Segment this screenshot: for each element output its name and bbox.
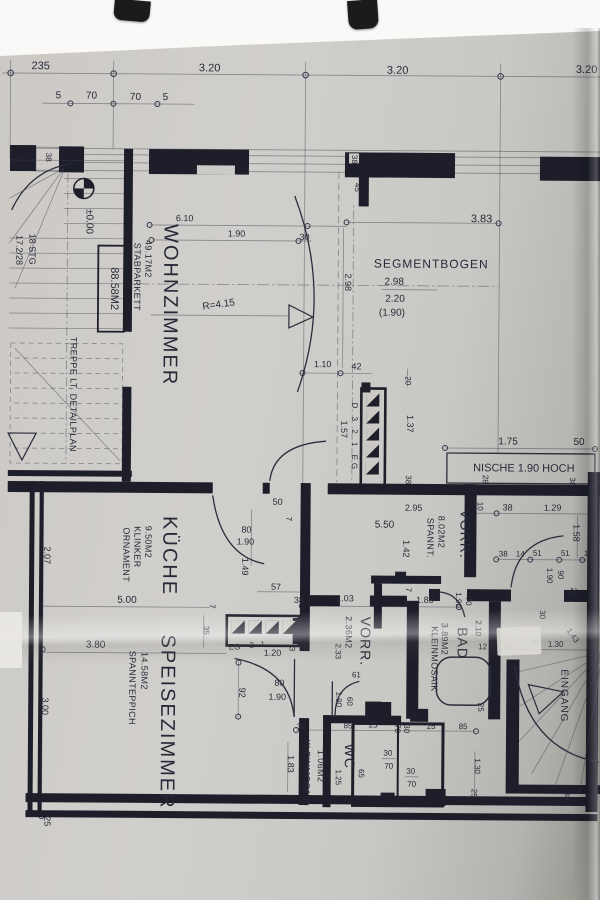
dim-label: 7 (404, 588, 413, 593)
dim-label: 30 (402, 724, 411, 734)
dim-label: 1.37 (405, 415, 415, 433)
dim-label: 1.90 (334, 691, 343, 707)
dim-label: 2.07 (42, 546, 52, 564)
dim-label: 80 (274, 678, 284, 688)
room-name-vorraum: VORR. (457, 509, 473, 558)
dim-label: 2.98 (343, 274, 353, 292)
step-label: 2 (249, 641, 254, 650)
dim-label: 3.80 (86, 640, 106, 651)
dim-label: 70 (86, 90, 98, 101)
dim-label: 28 (481, 475, 490, 485)
dim-label: 38 (44, 153, 53, 163)
room-area-speisezimmer: 14.58M2 (139, 652, 149, 690)
tape-patch-right (497, 626, 542, 656)
dim-label: 1.29 (544, 503, 562, 513)
segmentbogen-title: SEGMENTBOGEN (374, 257, 489, 272)
stair-steps-note: 18 STG (27, 234, 37, 265)
dim-label: 35 (202, 626, 211, 636)
dim-label: 70 (464, 597, 473, 607)
room-name-vorraum2: VORR. (357, 617, 373, 666)
dim-label: 50 (573, 437, 585, 448)
dim-label: 70 (384, 762, 394, 771)
dim-label: 1.90 (237, 537, 255, 547)
dim-label: 2.33 (334, 643, 343, 659)
dim-label: 80 (241, 525, 251, 535)
dim-label: 3.83 (471, 213, 493, 225)
dim-label: 25 (369, 720, 379, 729)
step-symbols (366, 393, 380, 474)
floorplan-photo: 235 3.20 3.20 3.20 5 70 70 5 38 38 45 18… (0, 0, 600, 900)
room-floor-bad: KLEINMOSAIK (429, 626, 439, 691)
room-name-bad: BAD (455, 627, 471, 659)
dim-label: 70 (130, 92, 142, 103)
arch-steps (361, 382, 386, 485)
dim-label: 70 (407, 780, 417, 789)
dim-label: 1.85 (416, 595, 434, 605)
dim-label: 38 (294, 595, 304, 605)
dim-label: 25 (569, 587, 578, 597)
dim-label: 5.00 (117, 595, 137, 606)
dim-label: 7 (208, 604, 217, 609)
room-name-eingang: EINGANG (558, 669, 569, 722)
room-area-wohnzimmer: 49.17M2 (143, 240, 153, 278)
floorplan-drawing: 235 3.20 3.20 3.20 5 70 70 5 38 38 45 18… (0, 0, 600, 900)
segmentbogen-value: (1.90) (379, 308, 405, 319)
dim-label: 30 (383, 749, 393, 758)
room-area-wc: 1.06M2 (316, 750, 326, 782)
room-name-wc: WC (342, 744, 358, 769)
room-floor-wc: KLEINMOSAIK (302, 739, 312, 804)
dim-label: 1.30 (473, 758, 482, 774)
dim-label: 45 (353, 183, 362, 193)
tape-patch-left (0, 612, 22, 668)
room-name-kueche: KÜCHE (158, 516, 181, 596)
room-name-wohnzimmer: WOHNZIMMER (158, 224, 181, 386)
dim-label: 5.50 (375, 520, 395, 531)
dim-label: 3.20 (576, 64, 598, 76)
step-numbers: D 3 2 1 EG (350, 403, 359, 473)
binder-clip-icon (347, 0, 379, 30)
dim-label: 235 (31, 60, 49, 72)
room-floor-kueche: KLINKER (132, 526, 142, 567)
dim-label: 7 (284, 517, 293, 522)
dim-label: 30 (538, 610, 547, 620)
dim-label: 1.30 (548, 640, 564, 649)
dim-label: 2.95 (405, 503, 423, 513)
dim-label: 1.57 (339, 421, 349, 439)
dim-label: 1.75 (498, 436, 518, 447)
dim-label: 57 (271, 582, 281, 592)
dim-label: 51 (561, 549, 571, 558)
dim-label: 42 (352, 361, 362, 371)
step-label: EG (229, 643, 241, 652)
dim-label: 30 (299, 232, 309, 242)
dim-label: 65 (357, 769, 366, 779)
dim-label: 1.49 (240, 558, 250, 576)
dim-label: 92 (237, 688, 247, 698)
dim-label: 70 (393, 724, 402, 734)
dim-label: 90 (556, 570, 565, 580)
dim-label: 1.43 (565, 627, 582, 645)
walls (5, 145, 600, 821)
dim-label: 3.20 (387, 65, 409, 77)
dim-label: 61 (352, 670, 362, 679)
dim-label: 85 (459, 722, 469, 731)
dim-label: 25 (42, 816, 52, 826)
dim-label: 25 (470, 789, 479, 799)
grid-lines (0, 60, 600, 487)
radius-label: R=4.15 (202, 297, 236, 312)
dim-label: 38 (297, 722, 307, 731)
room-area-vorraum2: 2.36M2 (344, 616, 354, 648)
dim-label: 1.83 (286, 755, 296, 773)
level-marker-icon (74, 178, 94, 198)
room-name-speisezimmer: SPEISEZIMMER (155, 634, 178, 809)
dim-label: 38 (404, 475, 413, 485)
bathtub (436, 657, 490, 705)
dim-label: 3.00 (40, 697, 50, 715)
dim-label: 38 (568, 477, 577, 487)
dim-label: 5 (56, 90, 62, 101)
dim-label: 25 (427, 722, 437, 731)
dim-label: 38 (563, 791, 572, 801)
dim-label: 1.20 (264, 648, 282, 658)
dim-label: 1.90 (454, 592, 463, 608)
segmentbogen-value: 2.98 (384, 277, 404, 288)
dim-label: 1.90 (228, 228, 246, 238)
dim-label: 13 (584, 549, 594, 558)
dim-label: 3.20 (199, 62, 221, 74)
room-floor-speisezimmer: SPANNTEPPICH (127, 651, 138, 725)
room-floor-vorraum: SPANNT. (425, 518, 435, 558)
room-area-vorraum: 8.02M2 (436, 516, 446, 548)
binder-clip-icon (113, 0, 151, 23)
dim-label: 1.03 (336, 593, 354, 603)
dim-label: 1.25 (334, 769, 343, 785)
room-floor-kueche: ORNAMENT (121, 527, 131, 582)
dim-label: 51 (533, 549, 543, 558)
room-area-bad: 3.89M2 (440, 623, 450, 655)
dim-label: 1.58 (571, 524, 581, 542)
dim-label: 1.90 (268, 692, 286, 702)
segmentbogen-value: 2.20 (385, 294, 405, 305)
dim-label: 14 (516, 550, 526, 559)
room-floor-wohnzimmer: STABPARKETT (132, 243, 142, 311)
dim-label: 30 (406, 767, 416, 776)
dim-label: 38 (503, 502, 513, 512)
stair-detail-note: TREPPE LT. DETAILPLAN (68, 337, 79, 452)
total-area-label: 88.58M2 (108, 267, 120, 310)
nische-label: NISCHE 1.90 HOCH (473, 462, 575, 475)
dim-label: 60 (345, 697, 354, 707)
dim-label: 25 (476, 703, 485, 713)
dim-label: 38 (350, 155, 359, 165)
dim-label: 38 (499, 549, 509, 558)
dim-label: 1.10 (314, 359, 332, 369)
dim-label: 20 (403, 376, 412, 386)
stair-steps-note: 17.2/28 (14, 235, 24, 265)
dim-label: 7 (386, 597, 391, 606)
dim-label: 50 (273, 497, 283, 507)
room-area-kueche: 9.50M2 (143, 526, 153, 558)
dim-label: 6.10 (176, 213, 194, 223)
dim-label: 85 (344, 721, 354, 730)
dim-label: 1.90 (545, 568, 554, 584)
dim-label: 1.42 (401, 540, 411, 558)
dim-label: 12 (478, 642, 488, 651)
step-label: 3 (288, 647, 297, 652)
dim-label: 2.10 (474, 620, 483, 636)
dim-label: 5 (163, 92, 169, 103)
level-label: ±0.00 (83, 209, 94, 234)
dim-label: 10 (476, 502, 485, 512)
